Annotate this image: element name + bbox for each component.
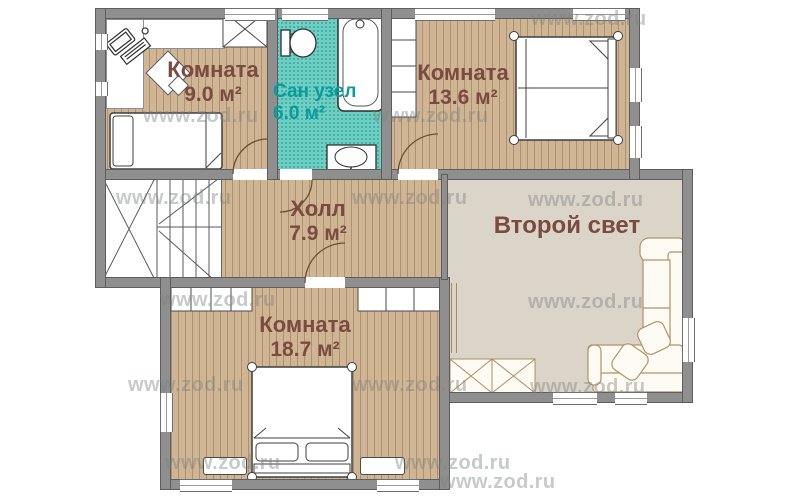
- staircase: [100, 175, 222, 283]
- watermark: www.zod.ru: [440, 471, 555, 494]
- corner-sofa: [586, 234, 690, 396]
- door-opening-room-13: [398, 169, 438, 180]
- shelf-room-18-left: [170, 284, 254, 313]
- door-opening-bathroom: [280, 169, 312, 180]
- wall-left: [95, 8, 106, 288]
- room-9-name: Комната: [128, 57, 298, 83]
- nightstand-right: [360, 457, 405, 475]
- wall-hall-bottom: [95, 277, 446, 288]
- floor-plan: Комната 9.0 м² Сан узел 6.0 м² Комната 1…: [0, 0, 795, 496]
- window: [573, 8, 625, 21]
- room-13-name: Комната: [378, 60, 548, 86]
- window: [282, 8, 328, 21]
- door-opening-room-9: [233, 169, 267, 180]
- window: [629, 68, 642, 102]
- toilet: [279, 26, 319, 60]
- room-18-label: Комната 18.7 м²: [220, 312, 390, 362]
- single-bed: [109, 112, 223, 170]
- wall-room-18-left: [160, 277, 171, 490]
- window: [377, 479, 419, 492]
- window: [629, 126, 642, 158]
- second-light-name: Второй свет: [467, 212, 667, 240]
- window: [682, 318, 695, 362]
- window: [180, 479, 232, 492]
- room-18-name: Комната: [220, 312, 390, 338]
- room-13-label: Комната 13.6 м²: [378, 60, 548, 110]
- room-18-area: 18.7 м²: [220, 338, 390, 362]
- wall-top: [95, 8, 640, 19]
- stairs-drawing: [100, 175, 222, 283]
- railing: [451, 283, 457, 353]
- bathroom-name: Сан узел: [273, 81, 385, 103]
- window: [415, 8, 495, 21]
- window: [160, 393, 173, 432]
- window: [553, 392, 597, 405]
- wall-hall-second-light: [441, 174, 448, 280]
- second-light-label: Второй свет: [467, 212, 667, 240]
- hall-name: Холл: [233, 196, 403, 222]
- double-bed-room-18: [244, 358, 360, 484]
- hall-area: 7.9 м²: [233, 222, 403, 246]
- window: [95, 82, 108, 96]
- wardrobe-second-light: [449, 358, 537, 395]
- wall-second-light-right: [682, 169, 693, 403]
- hall-label: Холл 7.9 м²: [233, 196, 403, 246]
- room-13-area: 13.6 м²: [378, 86, 548, 110]
- window: [95, 34, 108, 50]
- nightstand-left: [203, 457, 247, 475]
- wall-room-18-right: [439, 277, 450, 490]
- door-opening-room-18: [305, 277, 345, 288]
- window: [225, 8, 275, 21]
- window: [615, 392, 647, 405]
- wall-middle-band: [95, 169, 693, 180]
- shelf-room-18-right: [357, 284, 443, 313]
- bathroom-area: 6.0 м²: [273, 103, 385, 125]
- bathroom-label: Сан узел 6.0 м²: [273, 81, 385, 125]
